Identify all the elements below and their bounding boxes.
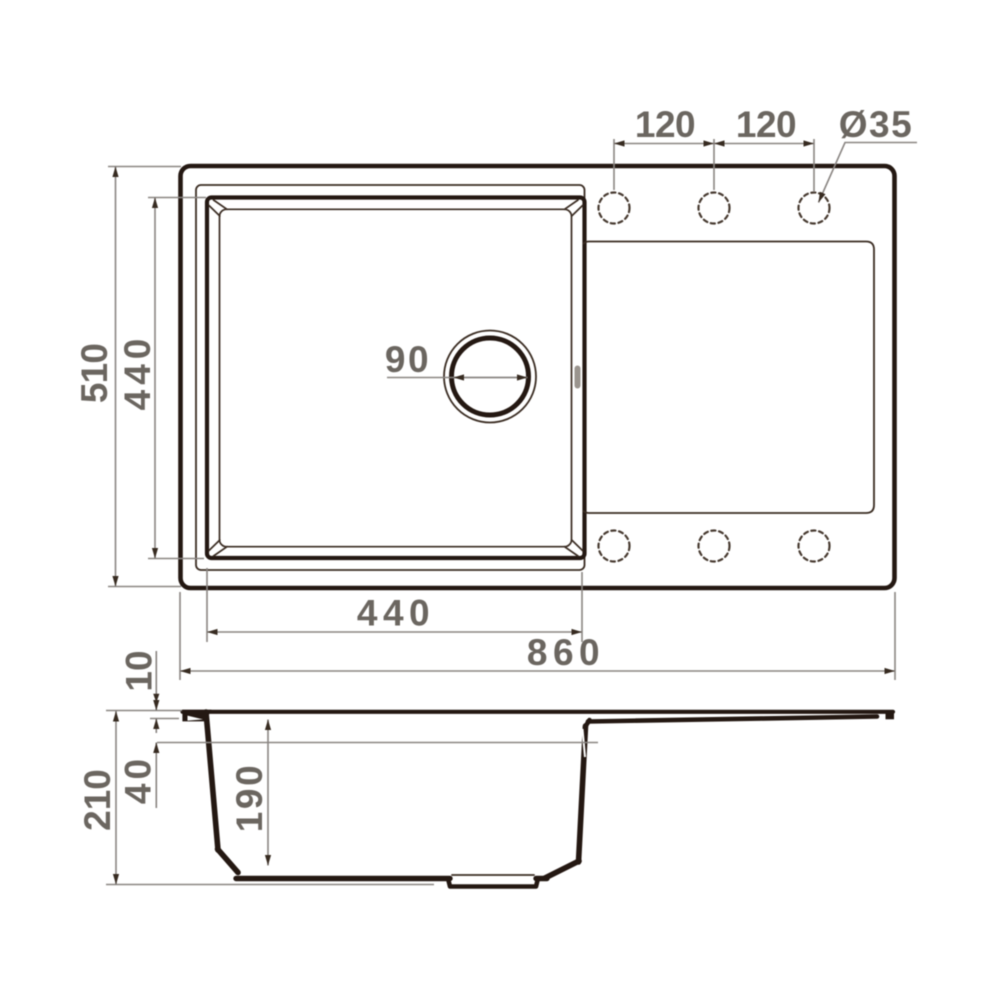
svg-text:10: 10 [119, 650, 160, 691]
svg-text:40: 40 [118, 755, 159, 804]
svg-text:860: 860 [527, 632, 605, 673]
svg-text:440: 440 [357, 593, 435, 634]
svg-text:120: 120 [635, 104, 695, 145]
svg-text:210: 210 [77, 769, 118, 831]
svg-text:510: 510 [74, 344, 115, 404]
svg-text:90: 90 [385, 339, 431, 380]
svg-text:Ø35: Ø35 [839, 104, 913, 145]
svg-text:440: 440 [117, 334, 158, 411]
svg-text:190: 190 [229, 763, 270, 833]
svg-text:120: 120 [736, 104, 796, 145]
